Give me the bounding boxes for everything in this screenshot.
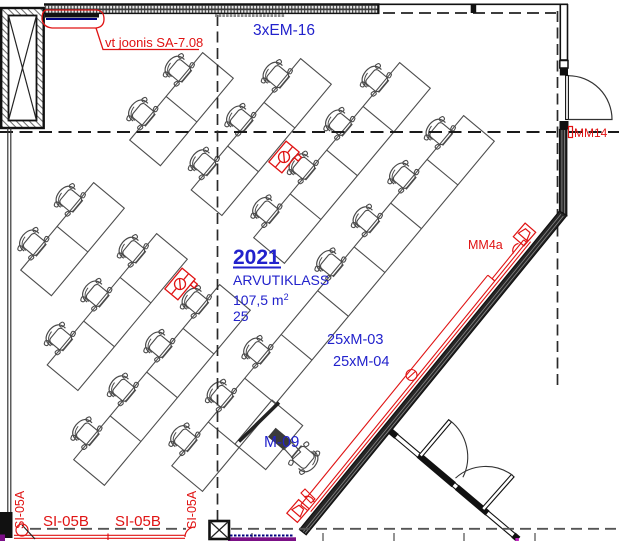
svg-text:SI-05B: SI-05B [43, 513, 89, 530]
svg-text:107,5 m2: 107,5 m2 [233, 292, 289, 308]
svg-text:2021: 2021 [233, 246, 280, 269]
svg-text:MM4a: MM4a [468, 238, 503, 252]
svg-text:M-09: M-09 [264, 434, 299, 451]
svg-text:SI-05B: SI-05B [115, 513, 161, 530]
svg-text:25: 25 [233, 308, 249, 324]
svg-text:vt joonis SA-7.08: vt joonis SA-7.08 [105, 35, 203, 50]
svg-text:SI-05A: SI-05A [13, 490, 27, 529]
svg-text:ARVUTIKLASS: ARVUTIKLASS [233, 272, 329, 288]
svg-text:3xEM-16: 3xEM-16 [253, 22, 315, 39]
svg-text:25xM-04: 25xM-04 [333, 354, 389, 370]
svg-text:25xM-03: 25xM-03 [327, 332, 383, 348]
svg-text:SI-05A: SI-05A [185, 490, 199, 529]
svg-text:MM14: MM14 [574, 126, 608, 140]
